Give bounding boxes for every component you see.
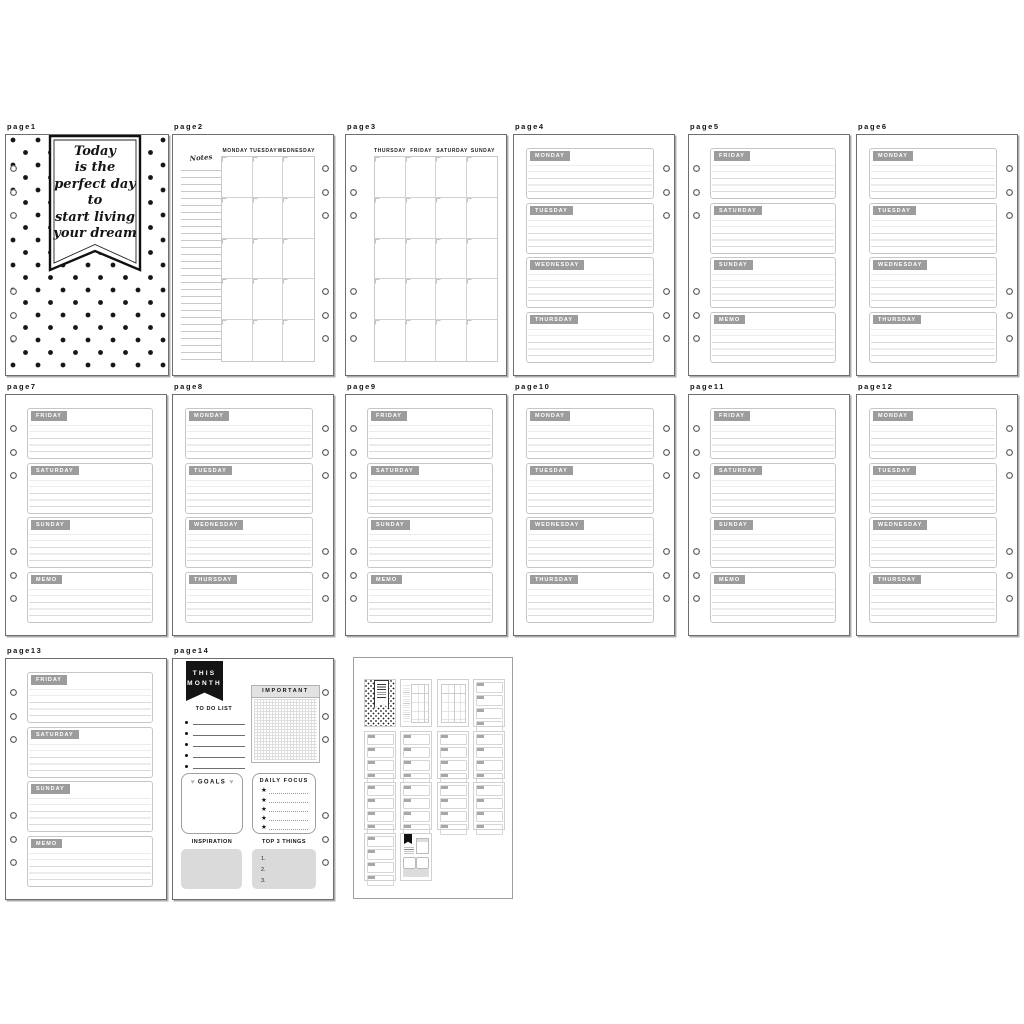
grid-cell xyxy=(283,239,314,280)
day-label: SUNDAY xyxy=(371,520,410,530)
todo-row xyxy=(183,717,245,728)
day-label: FRIDAY xyxy=(31,675,67,685)
day-label: MONDAY xyxy=(530,151,570,161)
grid-cell xyxy=(253,320,284,361)
day-section: WEDNESDAY xyxy=(526,257,654,308)
day-section: SUNDAY xyxy=(27,781,153,832)
planner-page-11: page11 FRIDAY SATURDAY SUNDAY MEMO xyxy=(688,394,850,636)
day-label: SATURDAY xyxy=(714,466,762,476)
day-section: TUESDAY xyxy=(526,463,654,514)
binder-holes xyxy=(9,135,18,375)
page-label: page7 xyxy=(7,382,37,391)
page-label: page13 xyxy=(7,646,42,655)
weekday-header: FRIDAY xyxy=(406,148,436,154)
day-label: MEMO xyxy=(31,839,62,849)
thumbnail-page7 xyxy=(437,731,469,779)
day-label: MEMO xyxy=(31,575,62,585)
todo-row xyxy=(183,728,245,739)
page-label: page8 xyxy=(174,382,204,391)
grid-cell xyxy=(406,157,437,198)
day-label: THURSDAY xyxy=(873,315,921,325)
thumbnail-page13 xyxy=(364,833,396,881)
day-label: WEDNESDAY xyxy=(873,520,927,530)
day-section: SUNDAY xyxy=(367,517,493,568)
day-section: MONDAY xyxy=(869,148,997,199)
day-label: FRIDAY xyxy=(31,411,67,421)
star-icon: ★ xyxy=(261,816,267,823)
star-icon: ★ xyxy=(261,825,267,832)
binder-holes xyxy=(1005,395,1014,635)
day-label: MEMO xyxy=(714,575,745,585)
goals-label: GOALS xyxy=(198,780,226,786)
day-label: FRIDAY xyxy=(714,151,750,161)
thumbnail-page8 xyxy=(473,731,505,779)
day-label: SUNDAY xyxy=(31,784,70,794)
todo-row xyxy=(183,750,245,761)
day-sections: FRIDAY SATURDAY SUNDAY MEMO xyxy=(367,408,493,623)
grid-cell xyxy=(253,279,284,320)
daily-focus-box: DAILY FOCUS ★ ★ ★ ★ ★ xyxy=(252,773,316,834)
day-section: THURSDAY xyxy=(185,572,313,623)
day-section: TUESDAY xyxy=(869,203,997,254)
day-label: SATURDAY xyxy=(371,466,419,476)
grid-cell xyxy=(375,279,406,320)
inspiration-title: INSPIRATION xyxy=(181,839,243,845)
page-label: page12 xyxy=(858,382,893,391)
important-title: IMPORTANT xyxy=(252,686,319,698)
grid-cell xyxy=(467,239,498,280)
grid-cell xyxy=(283,157,314,198)
day-label: WEDNESDAY xyxy=(189,520,243,530)
day-section: THURSDAY xyxy=(526,312,654,363)
grid-cell xyxy=(406,239,437,280)
focus-row: ★ xyxy=(261,815,308,824)
grid-cell xyxy=(253,198,284,239)
day-label: SUNDAY xyxy=(31,520,70,530)
week-grid xyxy=(221,156,315,362)
thumbnail-page2 xyxy=(400,679,432,727)
page-label: page1 xyxy=(7,122,37,131)
thumbnail-page5 xyxy=(364,731,396,779)
page-label: page5 xyxy=(690,122,720,131)
layout-preview-collage xyxy=(353,657,513,899)
binder-holes xyxy=(321,135,330,375)
weekday-header: THURSDAY xyxy=(374,148,406,154)
planner-page-8: page8 MONDAY TUESDAY WEDNESDAY THURSDAY xyxy=(172,394,334,636)
todo-row xyxy=(183,739,245,750)
planner-page-6: page6 MONDAY TUESDAY WEDNESDAY THURSDAY xyxy=(856,134,1018,376)
thumbnail-page3 xyxy=(437,679,469,727)
cover-quote-line: to xyxy=(48,193,142,209)
day-section: SATURDAY xyxy=(367,463,493,514)
page-label: page14 xyxy=(174,646,209,655)
this-month-banner: THIS MONTH xyxy=(186,661,223,701)
grid-cell xyxy=(283,320,314,361)
day-sections: FRIDAY SATURDAY SUNDAY MEMO xyxy=(710,408,836,623)
grid-cell xyxy=(406,279,437,320)
grid-cell xyxy=(406,198,437,239)
page-label: page10 xyxy=(515,382,550,391)
day-section: WEDNESDAY xyxy=(185,517,313,568)
focus-row: ★ xyxy=(261,796,308,805)
day-section: MEMO xyxy=(710,572,836,623)
day-label: MONDAY xyxy=(873,151,913,161)
top3-item: 2. xyxy=(261,865,316,876)
day-sections: MONDAY TUESDAY WEDNESDAY THURSDAY xyxy=(869,408,997,623)
planner-page-2: page2 Notes MONDAY TUESDAY WEDNESDAY xyxy=(172,134,334,376)
notes-label: Notes xyxy=(181,151,222,163)
todo-list-title: TO DO LIST xyxy=(183,706,245,712)
binder-holes xyxy=(692,135,701,375)
binder-holes xyxy=(321,395,330,635)
thumbnail-page14 xyxy=(400,833,432,881)
weekday-header: SATURDAY xyxy=(436,148,468,154)
grid-paper xyxy=(254,699,317,760)
this-month-line: MONTH xyxy=(186,679,223,689)
cover-quote: Today is the perfect day to start living… xyxy=(48,144,142,242)
day-label: TUESDAY xyxy=(873,206,916,216)
goals-box: ♥ GOALS ♥ xyxy=(181,773,243,834)
day-label: MEMO xyxy=(714,315,745,325)
top3-item: 1. xyxy=(261,854,316,865)
planner-page-5: page5 FRIDAY SATURDAY SUNDAY MEMO xyxy=(688,134,850,376)
day-sections: FRIDAY SATURDAY SUNDAY MEMO xyxy=(27,408,153,623)
dotted-line xyxy=(269,811,308,812)
day-section: MONDAY xyxy=(526,148,654,199)
grid-cell xyxy=(222,320,253,361)
thumbnail-inspiration xyxy=(403,869,416,877)
day-section: MEMO xyxy=(367,572,493,623)
this-month-line: THIS xyxy=(186,669,223,679)
grid-cell xyxy=(406,320,437,361)
day-label: SUNDAY xyxy=(714,520,753,530)
day-section: SUNDAY xyxy=(710,517,836,568)
grid-cell xyxy=(467,279,498,320)
grid-cell xyxy=(222,157,253,198)
day-label: THURSDAY xyxy=(530,575,578,585)
dotted-line xyxy=(269,793,308,794)
day-label: TUESDAY xyxy=(873,466,916,476)
planner-page-12: page12 MONDAY TUESDAY WEDNESDAY THURSDAY xyxy=(856,394,1018,636)
weekday-header-row: THURSDAY FRIDAY SATURDAY SUNDAY xyxy=(374,148,498,154)
daily-focus-title: DAILY FOCUS xyxy=(253,778,315,784)
planner-page-14: page14 THIS MONTH TO DO LIST IMPORTANT ♥… xyxy=(172,658,334,900)
binder-holes xyxy=(692,395,701,635)
grid-cell xyxy=(467,320,498,361)
star-icon: ★ xyxy=(261,807,267,814)
day-section: SATURDAY xyxy=(27,727,153,778)
focus-row: ★ xyxy=(261,824,308,833)
day-sections: MONDAY TUESDAY WEDNESDAY THURSDAY xyxy=(526,148,654,363)
weekday-header: WEDNESDAY xyxy=(278,148,315,154)
grid-cell xyxy=(253,157,284,198)
planner-printables-sheet: page1 Today is the perfect day to start … xyxy=(0,0,1024,1024)
notes-column: Notes xyxy=(181,153,221,361)
page-label: page6 xyxy=(858,122,888,131)
binder-holes xyxy=(349,395,358,635)
day-sections: MONDAY TUESDAY WEDNESDAY THURSDAY xyxy=(185,408,313,623)
day-section: MONDAY xyxy=(869,408,997,459)
day-section: SATURDAY xyxy=(710,203,836,254)
planner-page-13: page13 FRIDAY SATURDAY SUNDAY MEMO xyxy=(5,658,167,900)
cover-quote-line: Today xyxy=(48,144,142,160)
day-label: SATURDAY xyxy=(714,206,762,216)
day-section: SATURDAY xyxy=(710,463,836,514)
day-section: MEMO xyxy=(27,572,153,623)
day-section: MEMO xyxy=(710,312,836,363)
thumbnail-page12 xyxy=(473,782,505,830)
todo-row xyxy=(183,761,245,772)
day-label: WEDNESDAY xyxy=(530,260,584,270)
day-section: FRIDAY xyxy=(710,408,836,459)
planner-page-1: page1 Today is the perfect day to start … xyxy=(5,134,169,376)
dotted-line xyxy=(269,802,308,803)
binder-holes xyxy=(9,395,18,635)
top3-item: 3. xyxy=(261,876,316,887)
page-label: page11 xyxy=(690,382,725,391)
thumbnail-page1 xyxy=(364,679,396,727)
grid-cell xyxy=(436,320,467,361)
day-section: WEDNESDAY xyxy=(526,517,654,568)
day-label: MONDAY xyxy=(189,411,229,421)
day-label: TUESDAY xyxy=(530,206,573,216)
top3-box: 1. 2. 3. xyxy=(252,849,316,889)
grid-cell xyxy=(222,239,253,280)
thumbnail-page4 xyxy=(473,679,505,727)
grid-cell xyxy=(283,279,314,320)
weekday-header: MONDAY xyxy=(221,148,249,154)
grid-cell xyxy=(253,239,284,280)
top3-items: 1. 2. 3. xyxy=(252,849,316,887)
cover-quote-line: perfect day xyxy=(48,177,142,193)
day-sections: MONDAY TUESDAY WEDNESDAY THURSDAY xyxy=(869,148,997,363)
grid-cell xyxy=(375,157,406,198)
grid-cell xyxy=(467,157,498,198)
day-section: WEDNESDAY xyxy=(869,517,997,568)
weekday-header-row: MONDAY TUESDAY WEDNESDAY xyxy=(221,148,315,154)
day-label: THURSDAY xyxy=(873,575,921,585)
grid-cell xyxy=(467,198,498,239)
day-section: TUESDAY xyxy=(185,463,313,514)
day-section: FRIDAY xyxy=(27,672,153,723)
day-section: TUESDAY xyxy=(869,463,997,514)
day-label: MONDAY xyxy=(873,411,913,421)
thumbnail-page11 xyxy=(437,782,469,830)
thumbnail-page6 xyxy=(400,731,432,779)
binder-holes xyxy=(662,135,671,375)
day-sections: FRIDAY SATURDAY SUNDAY MEMO xyxy=(710,148,836,363)
grid-cell xyxy=(283,198,314,239)
day-section: WEDNESDAY xyxy=(869,257,997,308)
thumbnail-top3 xyxy=(416,869,429,877)
ribbon-banner: Today is the perfect day to start living… xyxy=(48,135,142,275)
grid-cell xyxy=(375,239,406,280)
thumbnail-banner xyxy=(404,834,412,844)
binder-holes xyxy=(321,659,330,899)
grid-cell xyxy=(436,279,467,320)
thumbnail-focus xyxy=(416,857,429,869)
binder-holes xyxy=(1005,135,1014,375)
dotted-line xyxy=(269,829,308,830)
day-section: FRIDAY xyxy=(710,148,836,199)
page-label: page4 xyxy=(515,122,545,131)
day-label: THURSDAY xyxy=(530,315,578,325)
day-label: TUESDAY xyxy=(530,466,573,476)
page-label: page3 xyxy=(347,122,377,131)
thumbnail-page10 xyxy=(400,782,432,830)
binder-holes xyxy=(349,135,358,375)
day-label: MONDAY xyxy=(530,411,570,421)
day-section: SUNDAY xyxy=(27,517,153,568)
thumbnail-important xyxy=(416,838,429,854)
day-label: SATURDAY xyxy=(31,466,79,476)
focus-row: ★ xyxy=(261,787,308,796)
week-grid xyxy=(374,156,498,362)
inspiration-box xyxy=(181,849,242,889)
day-label: FRIDAY xyxy=(714,411,750,421)
day-label: TUESDAY xyxy=(189,466,232,476)
day-section: MONDAY xyxy=(185,408,313,459)
star-icon: ★ xyxy=(261,798,267,805)
day-label: WEDNESDAY xyxy=(873,260,927,270)
planner-page-3: page3 THURSDAY FRIDAY SATURDAY SUNDAY xyxy=(345,134,507,376)
goals-title: ♥ GOALS ♥ xyxy=(182,779,242,786)
thumbnail-page9 xyxy=(364,782,396,830)
thumbnail-ribbon xyxy=(374,680,389,708)
day-section: MONDAY xyxy=(526,408,654,459)
day-section: TUESDAY xyxy=(526,203,654,254)
day-label: MEMO xyxy=(371,575,402,585)
grid-cell xyxy=(222,279,253,320)
binder-holes xyxy=(662,395,671,635)
day-section: FRIDAY xyxy=(367,408,493,459)
day-section: THURSDAY xyxy=(869,572,997,623)
day-label: FRIDAY xyxy=(371,411,407,421)
notes-ruled-lines xyxy=(181,164,221,361)
day-section: THURSDAY xyxy=(869,312,997,363)
weekday-header: TUESDAY xyxy=(249,148,277,154)
planner-page-4: page4 MONDAY TUESDAY WEDNESDAY THURSDAY xyxy=(513,134,675,376)
grid-cell xyxy=(436,239,467,280)
planner-page-10: page10 MONDAY TUESDAY WEDNESDAY THURSDAY xyxy=(513,394,675,636)
day-label: SUNDAY xyxy=(714,260,753,270)
important-box: IMPORTANT xyxy=(251,685,320,763)
binder-holes xyxy=(9,659,18,899)
weekday-header: SUNDAY xyxy=(468,148,498,154)
grid-cell xyxy=(436,157,467,198)
dotted-line xyxy=(269,820,308,821)
day-section: THURSDAY xyxy=(526,572,654,623)
cover-quote-line: is the xyxy=(48,160,142,176)
planner-page-9: page9 FRIDAY SATURDAY SUNDAY MEMO xyxy=(345,394,507,636)
day-label: WEDNESDAY xyxy=(530,520,584,530)
day-sections: MONDAY TUESDAY WEDNESDAY THURSDAY xyxy=(526,408,654,623)
day-section: FRIDAY xyxy=(27,408,153,459)
focus-row: ★ xyxy=(261,805,308,814)
grid-cell xyxy=(222,198,253,239)
page-label: page2 xyxy=(174,122,204,131)
cover-quote-line: your dream xyxy=(48,226,142,242)
heart-icon: ♥ xyxy=(191,779,195,786)
page-label: page9 xyxy=(347,382,377,391)
day-label: SATURDAY xyxy=(31,730,79,740)
todo-list: TO DO LIST xyxy=(183,706,245,772)
heart-icon: ♥ xyxy=(229,779,233,786)
day-sections: FRIDAY SATURDAY SUNDAY MEMO xyxy=(27,672,153,887)
day-section: MEMO xyxy=(27,836,153,887)
planner-page-7: page7 FRIDAY SATURDAY SUNDAY MEMO xyxy=(5,394,167,636)
day-label: THURSDAY xyxy=(189,575,237,585)
thumbnail-goals xyxy=(403,857,416,869)
grid-cell xyxy=(375,320,406,361)
grid-cell xyxy=(375,198,406,239)
day-section: SUNDAY xyxy=(710,257,836,308)
cover-quote-line: start living xyxy=(48,210,142,226)
star-icon: ★ xyxy=(261,788,267,795)
top3-title: TOP 3 THINGS xyxy=(252,839,316,845)
grid-cell xyxy=(436,198,467,239)
day-section: SATURDAY xyxy=(27,463,153,514)
